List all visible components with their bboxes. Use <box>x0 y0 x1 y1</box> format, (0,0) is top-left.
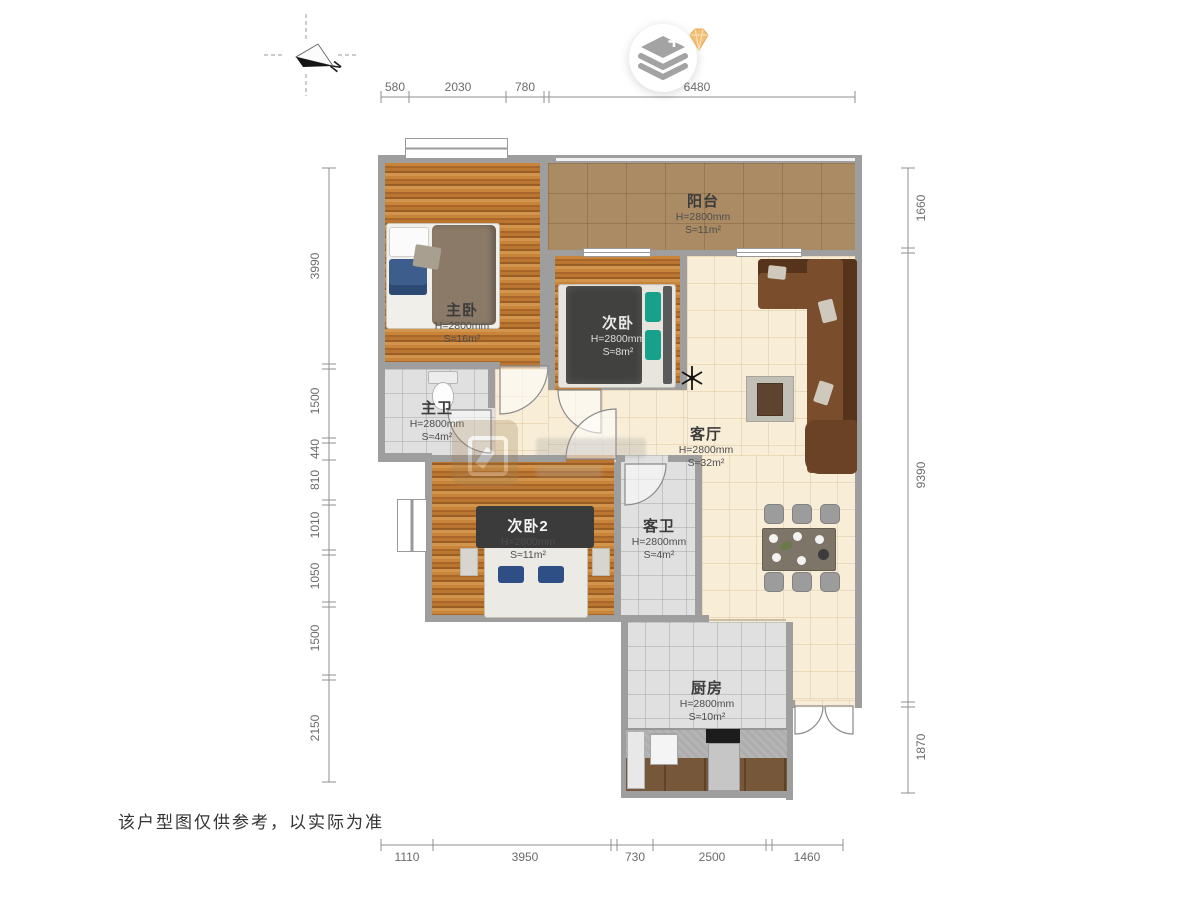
wall <box>855 700 862 708</box>
dim-left-6: 1050 <box>308 554 322 598</box>
dim-bottom-2: 3950 <box>503 850 547 864</box>
room-height: H=2800mm <box>458 536 598 548</box>
room-label-master-bath: 主卫 H=2800mm S≈4m² <box>367 400 507 443</box>
room-area: S≈10m² <box>637 711 777 723</box>
dim-bottom-3: 730 <box>613 850 657 864</box>
kitchen-threshold-line <box>709 619 786 621</box>
dim-bottom-1: 1110 <box>385 850 429 864</box>
dim-right-1: 1660 <box>914 186 928 230</box>
dim-left-1: 3990 <box>308 244 322 288</box>
room-name: 主卫 <box>367 400 507 417</box>
entrance-threshold <box>795 700 855 708</box>
dim-right-2: 9390 <box>914 453 928 497</box>
compass-crosshair <box>264 14 356 96</box>
dining-plate <box>772 553 781 562</box>
room-area: S≈4m² <box>367 431 507 443</box>
dining-chair <box>764 572 784 592</box>
dining-bowl <box>818 549 829 560</box>
wall <box>786 622 793 800</box>
bedroom3-pillow-blue-2 <box>538 566 564 583</box>
dimension-line-right <box>901 168 915 793</box>
room-height: H=2800mm <box>589 536 729 548</box>
dining-chair <box>792 504 812 524</box>
bedroom3-pillow-blue-1 <box>498 566 524 583</box>
room-label-guest-bath: 客卫 H=2800mm S≈4m² <box>589 518 729 561</box>
sofa-chaise <box>805 420 857 474</box>
dim-bottom-4: 2500 <box>690 850 734 864</box>
dining-plate <box>769 534 778 543</box>
room-label-kitchen: 厨房 H=2800mm S≈10m² <box>637 680 777 723</box>
room-area: S≈32m² <box>636 457 776 469</box>
balcony-sliding-door-2 <box>736 248 802 257</box>
kitchen-oven-column <box>708 743 740 791</box>
balcony-window-glazing <box>556 158 855 161</box>
room-area: S≈11m² <box>633 224 773 236</box>
wall <box>378 362 500 369</box>
room-height: H=2800mm <box>636 444 776 456</box>
balcony-sliding-door-1 <box>583 248 651 257</box>
room-height: H=2800mm <box>633 211 773 223</box>
floorplan-page: 580 2030 780 6480 1110 3950 730 2500 146… <box>0 0 1200 900</box>
room-height: H=2800mm <box>548 333 688 345</box>
room-name: 客卫 <box>589 518 729 535</box>
dimension-line-left <box>322 168 336 782</box>
bedroom3-window <box>397 499 427 552</box>
room-height: H=2800mm <box>392 320 532 332</box>
room-name: 次卧 <box>548 315 688 332</box>
dim-left-5: 1010 <box>308 503 322 547</box>
room-height: H=2800mm <box>637 698 777 710</box>
room-label-balcony: 阳台 H=2800mm S≈11m² <box>633 193 773 236</box>
dim-left-7: 1500 <box>308 616 322 660</box>
dimension-line-bottom <box>381 839 843 851</box>
room-label-bedroom3: 次卧2 H=2800mm S≈11m² <box>458 518 598 561</box>
dining-chair <box>820 504 840 524</box>
dining-chair <box>792 572 812 592</box>
room-label-living-room: 客厅 H=2800mm S≈32m² <box>636 426 776 469</box>
room-name: 次卧2 <box>458 518 598 535</box>
sofa-pillow-3 <box>767 265 786 280</box>
room-area: S≈16m² <box>392 333 532 345</box>
dining-plate <box>797 556 806 565</box>
dim-left-2: 1500 <box>308 379 322 423</box>
room-label-bedroom2: 次卧 H=2800mm S≈8m² <box>548 315 688 358</box>
entrance-door-left <box>795 706 823 734</box>
dim-top-2: 2030 <box>436 80 480 94</box>
dim-top-3: 780 <box>503 80 547 94</box>
kitchen-fridge <box>627 731 645 789</box>
wall <box>786 700 795 708</box>
dim-bottom-5: 1460 <box>785 850 829 864</box>
room-area: S≈8m² <box>548 346 688 358</box>
master-bed-throw <box>412 244 441 270</box>
wall <box>548 383 555 390</box>
room-area: S≈4m² <box>589 549 729 561</box>
dining-plate <box>793 532 802 541</box>
wall <box>540 163 548 369</box>
wall <box>616 455 625 462</box>
wall <box>614 615 709 622</box>
wall <box>425 455 566 462</box>
room-name: 客厅 <box>636 426 776 443</box>
dim-left-4: 810 <box>308 458 322 502</box>
room-name: 主卧 <box>392 302 532 319</box>
room-area: S≈11m² <box>458 549 598 561</box>
room-height: H=2800mm <box>367 418 507 430</box>
dining-chair <box>764 504 784 524</box>
master-window <box>405 138 508 159</box>
dim-right-3: 1870 <box>914 725 928 769</box>
dining-chair <box>820 572 840 592</box>
room-name: 阳台 <box>633 193 773 210</box>
room-label-master-bedroom: 主卧 H=2800mm S≈16m² <box>392 302 532 345</box>
kitchen-sink <box>650 733 678 765</box>
gem-icon <box>686 26 712 54</box>
wall <box>378 453 432 462</box>
coffee-table-tray <box>757 383 783 416</box>
wall <box>621 790 793 798</box>
disclaimer-text: 该户型图仅供参考，以实际为准 <box>118 808 384 833</box>
dim-top-1: 580 <box>373 80 417 94</box>
north-label: N <box>327 58 345 75</box>
room-name: 厨房 <box>637 680 777 697</box>
kitchen-stove <box>706 729 740 743</box>
entrance-door-right <box>825 706 853 734</box>
dim-left-8: 2150 <box>308 706 322 750</box>
dining-plate <box>815 535 824 544</box>
